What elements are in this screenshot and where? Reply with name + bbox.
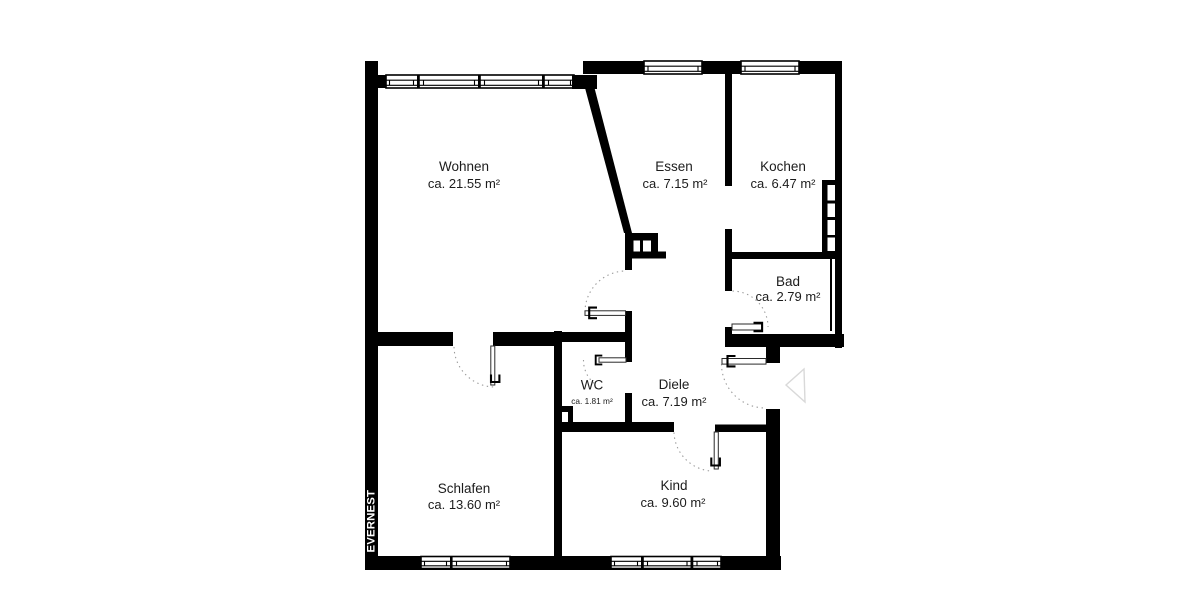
svg-text:Kochen: Kochen [760, 159, 806, 174]
svg-text:Wohnen: Wohnen [439, 159, 489, 174]
svg-text:Diele: Diele [659, 377, 690, 392]
svg-text:Kind: Kind [660, 478, 687, 493]
svg-text:ca. 1.81 m²: ca. 1.81 m² [571, 396, 613, 406]
svg-text:ca. 21.55 m²: ca. 21.55 m² [428, 176, 501, 191]
svg-text:Schlafen: Schlafen [438, 481, 491, 496]
svg-text:ca. 9.60 m²: ca. 9.60 m² [640, 495, 706, 510]
svg-text:EVERNEST: EVERNEST [366, 490, 378, 553]
svg-text:ca. 13.60 m²: ca. 13.60 m² [428, 497, 501, 512]
svg-text:Bad: Bad [776, 274, 800, 289]
svg-text:ca. 2.79 m²: ca. 2.79 m² [755, 289, 821, 304]
svg-text:ca. 6.47 m²: ca. 6.47 m² [750, 176, 816, 191]
svg-text:ca. 7.15 m²: ca. 7.15 m² [642, 176, 708, 191]
svg-text:Essen: Essen [655, 159, 693, 174]
svg-text:ca. 7.19 m²: ca. 7.19 m² [641, 394, 707, 409]
svg-text:WC: WC [581, 378, 604, 393]
